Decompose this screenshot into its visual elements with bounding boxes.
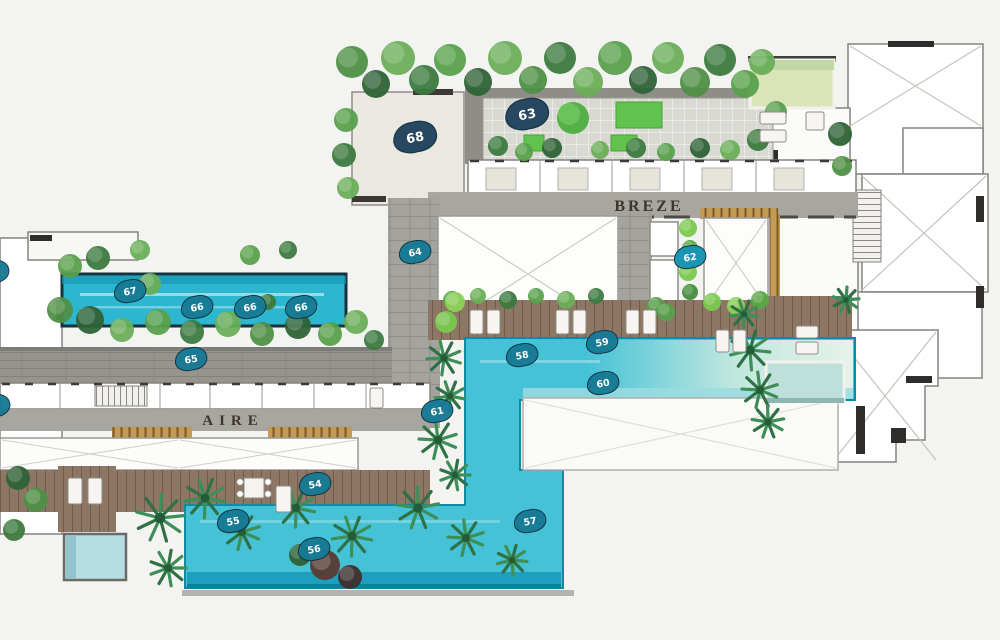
tree-icon: [76, 306, 104, 334]
plunge-pool-bottomleft: [64, 534, 126, 580]
tree-icon: [720, 140, 740, 160]
marker-number: 66: [190, 301, 205, 314]
tree-icon: [435, 311, 457, 333]
tree-icon: [86, 246, 110, 270]
tree-icon: [434, 44, 466, 76]
tree-icon: [488, 41, 522, 75]
lounger-icon: [733, 330, 746, 352]
tree-icon: [499, 291, 517, 309]
lounger-icon: [470, 310, 483, 334]
tree-icon: [250, 322, 274, 346]
tree-icon: [344, 310, 368, 334]
tree-icon: [464, 68, 492, 96]
aire-units-row: [0, 383, 430, 409]
cabanas: [650, 222, 678, 306]
lounger-icon: [556, 310, 569, 334]
tree-icon: [703, 293, 721, 311]
lounger-icon: [796, 326, 818, 338]
marker-number: 59: [595, 337, 610, 350]
marker-number: 67: [123, 286, 138, 299]
tree-icon: [240, 245, 260, 265]
tree-icon: [332, 143, 356, 167]
stairs-icon: [95, 386, 147, 406]
palm-icon: [441, 460, 470, 490]
tree-icon: [751, 291, 769, 309]
tree-icon: [832, 156, 852, 176]
tree-icon: [588, 288, 604, 304]
lounger-icon: [760, 112, 786, 124]
marker-number: 57: [523, 516, 538, 529]
lounger-icon: [276, 486, 291, 512]
area-label-breze: BREZE: [614, 198, 683, 215]
lounger-icon: [643, 310, 656, 334]
tree-icon: [337, 177, 359, 199]
tree-icon: [528, 288, 544, 304]
tree-icon: [445, 292, 465, 312]
tree-icon: [542, 138, 562, 158]
lounger-icon: [716, 330, 729, 352]
lounger-icon: [796, 342, 818, 354]
tree-icon: [657, 303, 675, 321]
tree-icon: [682, 284, 698, 300]
marker-number: 58: [515, 349, 530, 362]
marker-number: 60: [596, 377, 611, 390]
palm-icon: [419, 421, 456, 458]
tree-icon: [679, 219, 697, 237]
lounger-icon: [88, 478, 102, 504]
tree-icon: [180, 320, 204, 344]
tree-icon: [470, 288, 486, 304]
marker-number: 56: [307, 543, 322, 556]
marker-number: 68: [405, 129, 425, 147]
lounger-icon: [370, 388, 383, 408]
marker-number: 63: [517, 106, 537, 124]
tree-icon: [629, 66, 657, 94]
tree-icon: [544, 42, 576, 74]
tree-icon: [362, 70, 390, 98]
tree-icon: [690, 138, 710, 158]
tree-icon: [130, 240, 150, 260]
tree-icon: [381, 41, 415, 75]
tree-icon: [515, 143, 533, 161]
tree-icon: [626, 138, 646, 158]
tree-icon: [557, 291, 575, 309]
masterplan-drawing: 6863646267666666655859606154555657 BREZE…: [0, 0, 1000, 640]
tree-icon: [657, 143, 675, 161]
aire-canopy: [0, 438, 358, 470]
marker-number: 66: [243, 301, 258, 314]
tree-icon: [318, 322, 342, 346]
tree-icon: [364, 330, 384, 350]
lounger-icon: [626, 310, 639, 334]
lounger-icon: [487, 310, 500, 334]
marker-number: 66: [294, 301, 309, 314]
tree-icon: [409, 65, 439, 95]
tree-icon: [6, 466, 30, 490]
tree-icon: [110, 318, 134, 342]
tree-icon: [519, 66, 547, 94]
marker-number: 61: [430, 406, 445, 419]
tree-icon: [731, 70, 759, 98]
area-label-aire: AIRE: [202, 413, 264, 429]
tree-icon: [58, 254, 82, 278]
tree-icon: [338, 565, 362, 589]
tree-icon: [591, 141, 609, 159]
tree-icon: [652, 42, 684, 74]
lounger-icon: [806, 112, 824, 130]
tree-icon: [334, 108, 358, 132]
tree-icon: [573, 67, 603, 97]
tree-icon: [279, 241, 297, 259]
deck-bl: [58, 466, 116, 532]
tree-icon: [749, 49, 775, 75]
marker-number: 64: [408, 246, 423, 259]
marker-number: 65: [184, 354, 199, 367]
palm-icon: [151, 550, 186, 585]
lounger-icon: [760, 130, 786, 142]
floorplan-stage: 6863646267666666655859606154555657 BREZE…: [0, 0, 1000, 640]
tree-icon: [828, 122, 852, 146]
marker-number: 54: [308, 478, 323, 491]
tree-icon: [145, 309, 171, 335]
tree-icon: [336, 46, 368, 78]
tree-icon: [47, 297, 73, 323]
lounger-icon: [573, 310, 586, 334]
marker-number: 62: [683, 252, 698, 265]
tree-icon: [488, 136, 508, 156]
tree-icon: [3, 519, 25, 541]
lounger-icon: [68, 478, 82, 504]
tree-icon: [704, 44, 736, 76]
tree-icon: [598, 41, 632, 75]
island-deck: [523, 398, 838, 470]
tree-icon: [680, 67, 710, 97]
marker-number: 55: [226, 516, 241, 529]
tree-icon: [24, 488, 48, 512]
